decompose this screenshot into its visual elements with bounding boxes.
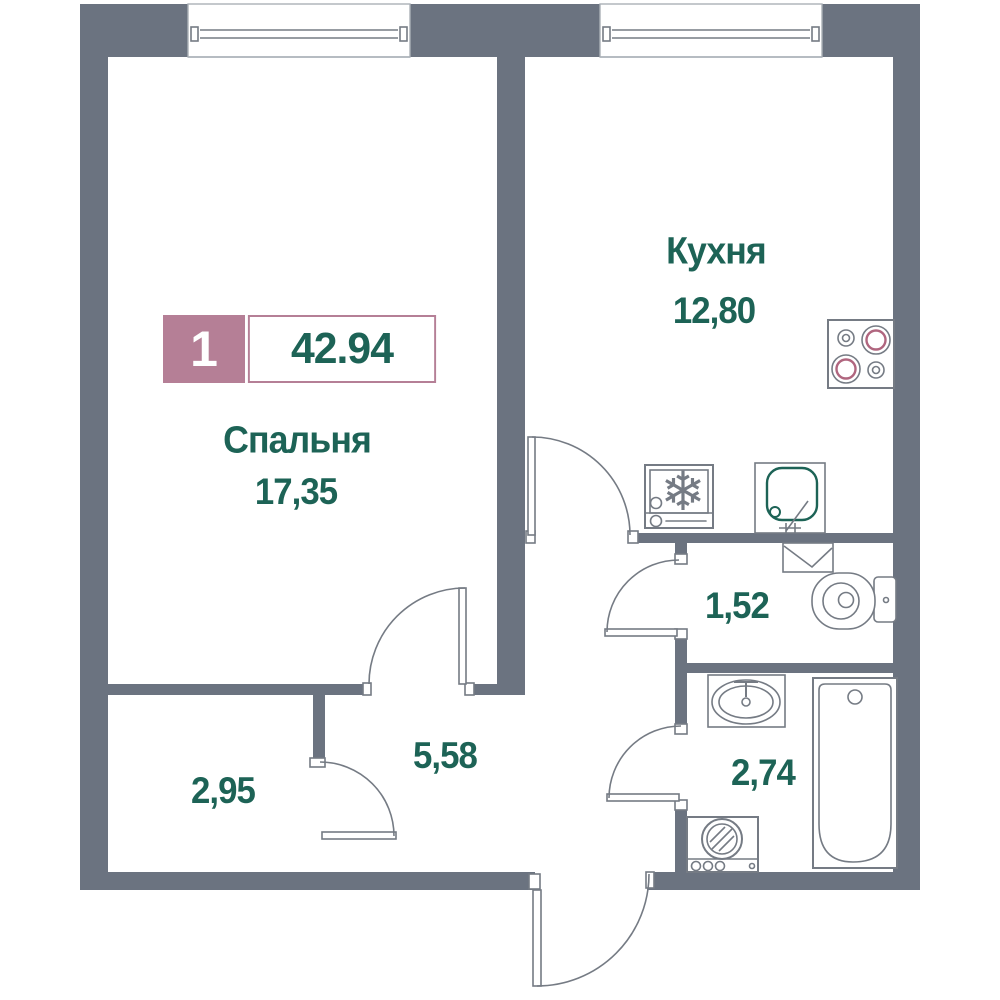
shelf-icon [783,543,833,572]
fridge-icon: ❄ [645,460,713,528]
toilet-door [605,554,687,639]
hallway-area: 5,58 [413,735,477,777]
total-area-badge: 42.94 [248,315,436,383]
bedroom-door [363,588,474,695]
closet-door [310,758,396,839]
bathroom-sink-icon [708,675,785,727]
closet-area: 2,95 [191,770,255,812]
kitchen-label: Кухня [666,231,766,274]
room-count-badge: 1 [163,315,245,383]
kitchen-window-icon [600,4,822,57]
apartment-badge: 1 42.94 [163,315,439,383]
bedroom-label: Спальня [223,420,371,463]
washing-machine-icon [687,817,758,872]
toilet-area: 1,52 [705,585,769,627]
floorplan-drawing: ❄ [0,0,1000,1000]
bedroom-window-icon [188,4,410,57]
bathroom-door [607,724,687,810]
floorplan-canvas: ❄ [0,0,1000,1000]
stove-icon [828,320,894,388]
entrance-door [529,872,654,986]
toilet-icon [812,573,896,629]
kitchen-sink-icon [755,463,825,533]
kitchen-door [526,437,638,543]
kitchen-area: 12,80 [673,290,755,332]
bathtub-icon [813,678,897,868]
bedroom-area: 17,35 [255,471,337,513]
snowflake-icon: ❄ [660,460,705,523]
bathroom-area: 2,74 [731,752,795,794]
